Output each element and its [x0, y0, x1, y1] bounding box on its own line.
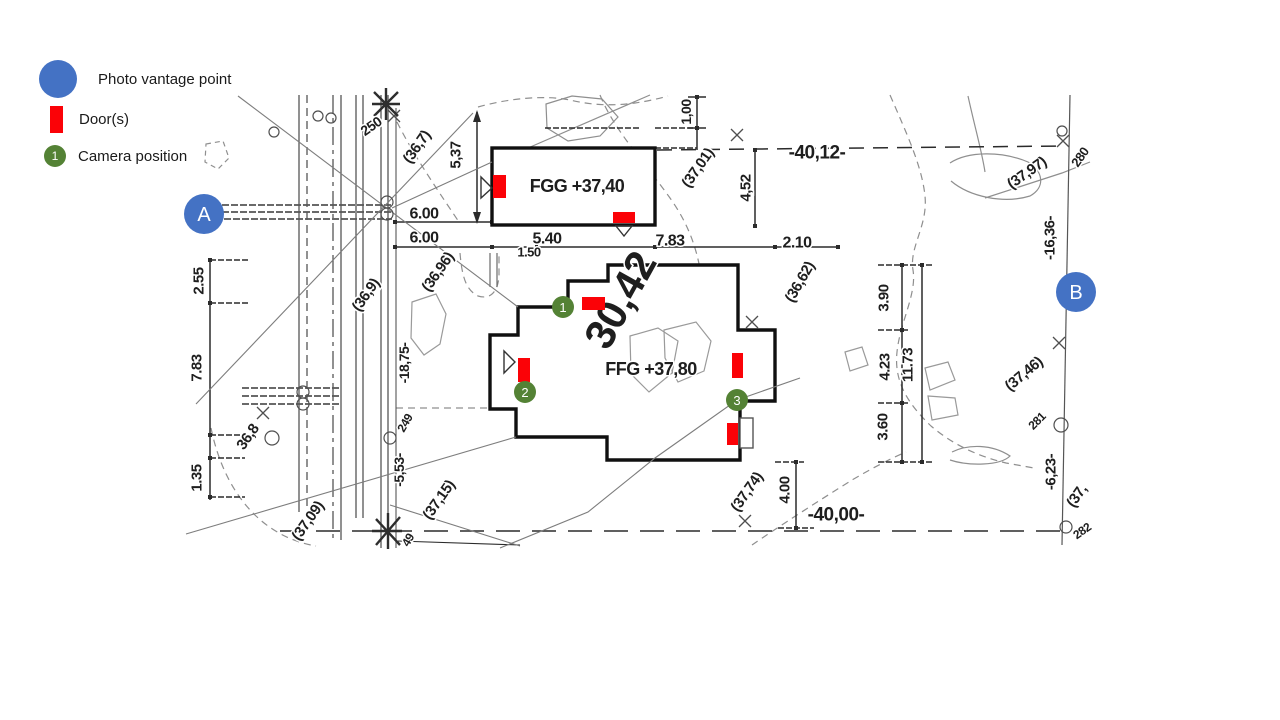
legend-label: Photo vantage point [98, 71, 231, 88]
dimension-label: 249 [394, 411, 416, 435]
door-marker[interactable] [727, 423, 738, 445]
dimension-label: 3.90 [876, 284, 893, 311]
dimension-label: -16,36- [1042, 215, 1059, 260]
building-label-fgg: FGG +37,40 [530, 176, 625, 196]
dimension-label: 6.00 [409, 206, 439, 223]
door-marker[interactable] [518, 358, 530, 382]
legend-label: Door(s) [79, 111, 129, 128]
dimension-label: 4,52 [738, 174, 755, 201]
elevation-label: (37,15) [419, 477, 458, 523]
elevation-label: (37,01) [678, 145, 717, 191]
legend-item-door: Door(s) [50, 106, 129, 133]
dimension-label: 2.55 [191, 267, 208, 294]
dimension-label: 4.00 [777, 476, 794, 503]
dimension-label: 3.60 [875, 413, 892, 440]
dimension-label: 280 [1068, 144, 1092, 169]
dimension-label: 7.83 [189, 354, 206, 381]
elevation-label: (37,97) [1004, 153, 1050, 192]
vantage-point-letter: B [1069, 282, 1082, 304]
door-marker[interactable] [493, 175, 506, 198]
vantage-point-letter: A [197, 204, 211, 226]
camera-badge: 1 [52, 149, 59, 163]
camera-position-number: 1 [559, 300, 566, 315]
dimension-label: 49 [399, 530, 418, 548]
dimension-label: 7.83 [655, 233, 685, 250]
door-icon [50, 106, 63, 133]
dimension-label: -40,00- [808, 505, 865, 526]
legend-label: Camera position [78, 148, 187, 165]
building-label-ffg: FFG +37,80 [605, 359, 697, 379]
dimension-label: 282 [1070, 519, 1094, 542]
legend-item-vantage: Photo vantage point [39, 60, 231, 98]
door-marker[interactable] [732, 353, 743, 378]
dimension-label: -5,53- [391, 452, 407, 486]
dimension-label: 281 [1025, 409, 1049, 433]
dimension-label: -40,12- [789, 143, 846, 164]
elevation-label: (36,62) [782, 258, 819, 305]
door-marker[interactable] [613, 212, 635, 223]
elevation-label: (36,9) [349, 275, 384, 315]
elevation-label: (36,7) [400, 127, 435, 167]
dimension-label: 6.00 [409, 230, 439, 247]
vantage-point-B[interactable]: B [1056, 272, 1096, 312]
camera-position-3[interactable]: 3 [726, 389, 748, 411]
dimension-label: 4.23 [877, 353, 894, 380]
dimension-label: 1.35 [189, 464, 206, 491]
dimension-label: -18,75- [396, 342, 412, 384]
landing-step [740, 418, 753, 448]
dimension-label: 5,37 [448, 141, 465, 168]
dimension-label: -6,23- [1043, 453, 1060, 490]
elevation-label: (37,09) [288, 498, 327, 544]
elevation-label: (36,96) [418, 249, 457, 295]
dimension-label: 1,00 [678, 99, 694, 125]
annotated-site-plan: Photo vantage point Door(s) 1 Camera pos… [0, 0, 1280, 720]
site-plan: FGG +37,40FFG +37,8030,42250(36,7)5,376.… [0, 0, 1280, 720]
dimension-label: 11.73 [900, 348, 917, 382]
elevation-label: (37, [1063, 481, 1091, 511]
camera-position-1[interactable]: 1 [552, 296, 574, 318]
camera-position-icon: 1 [44, 145, 66, 167]
elevation-label: (37,46) [1002, 353, 1047, 395]
camera-position-2[interactable]: 2 [514, 381, 536, 403]
photo-vantage-point-icon [39, 60, 77, 98]
camera-position-number: 2 [521, 385, 528, 400]
vantage-point-A[interactable]: A [184, 194, 224, 234]
dimension-label: 1.50 [517, 245, 541, 260]
dimension-label: 2.10 [782, 235, 812, 252]
legend-item-camera: 1 Camera position [44, 145, 187, 167]
dimension-label: 36,8 [233, 421, 263, 453]
elevation-label: (37,74) [727, 469, 766, 515]
camera-position-number: 3 [733, 393, 740, 408]
door-marker[interactable] [582, 297, 605, 310]
